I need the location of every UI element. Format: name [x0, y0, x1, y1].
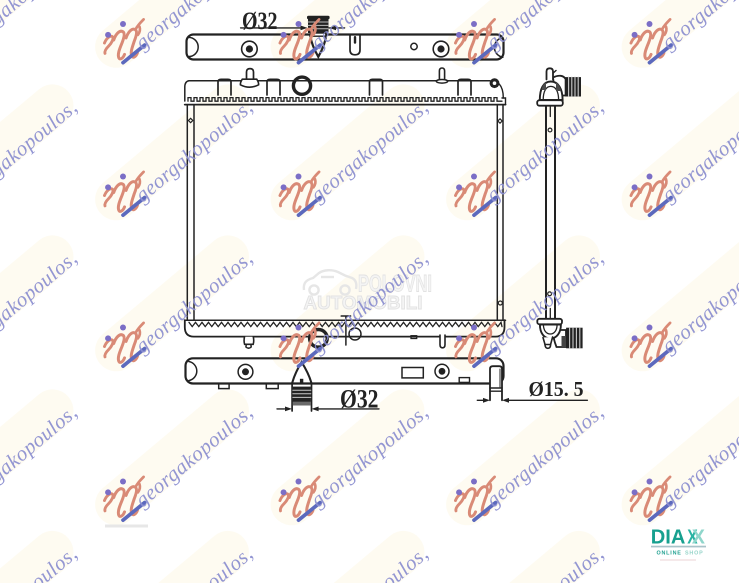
- svg-text:X: X: [692, 527, 706, 549]
- svg-text:ONLINE: ONLINE: [657, 551, 682, 557]
- svg-text:SHOP: SHOP: [685, 551, 703, 557]
- svg-text:Ø32: Ø32: [242, 8, 278, 35]
- svg-text:Ø15. 5: Ø15. 5: [529, 377, 584, 401]
- svg-text:Ø32: Ø32: [340, 385, 379, 414]
- svg-text:DIA: DIA: [651, 527, 686, 549]
